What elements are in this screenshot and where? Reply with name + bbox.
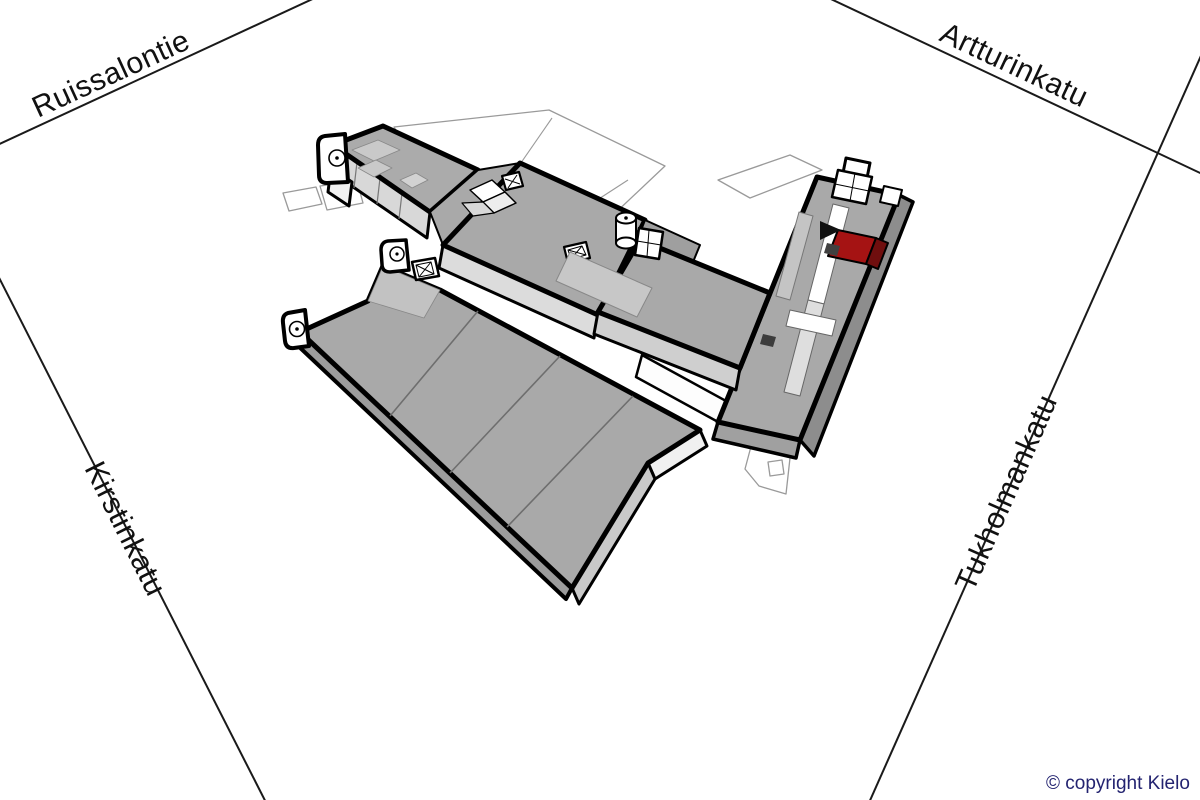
street-label-kirstinkatu: Kirstinkatu [78,456,172,601]
wing-ne-box-right [880,186,902,206]
street-label-ruissalontie: Ruissalontie [27,24,195,125]
street-label-artturinkatu: Artturinkatu [935,16,1093,114]
ghost-house-southeast-box [768,460,784,476]
skylight-xbox-sw [412,258,439,280]
street-line-artturinkatu [816,0,1200,180]
map-canvas: Ruissalontie Artturinkatu Kirstinkatu Tu… [0,0,1200,800]
copyright-text: © copyright Kielo [1046,773,1190,794]
roof-chimney-cylinder [616,213,636,249]
skylight-xbox-north [502,172,523,190]
ghost-parcel-west-a [283,187,322,211]
site-plan-svg: Ruissalontie Artturinkatu Kirstinkatu Tu… [0,0,1200,800]
roof-box-central [635,228,663,259]
street-line-ruissalontie [0,0,332,153]
street-label-tukholmankatu: Tukholmankatu [949,390,1064,596]
ghost-parcel-east [718,155,822,198]
